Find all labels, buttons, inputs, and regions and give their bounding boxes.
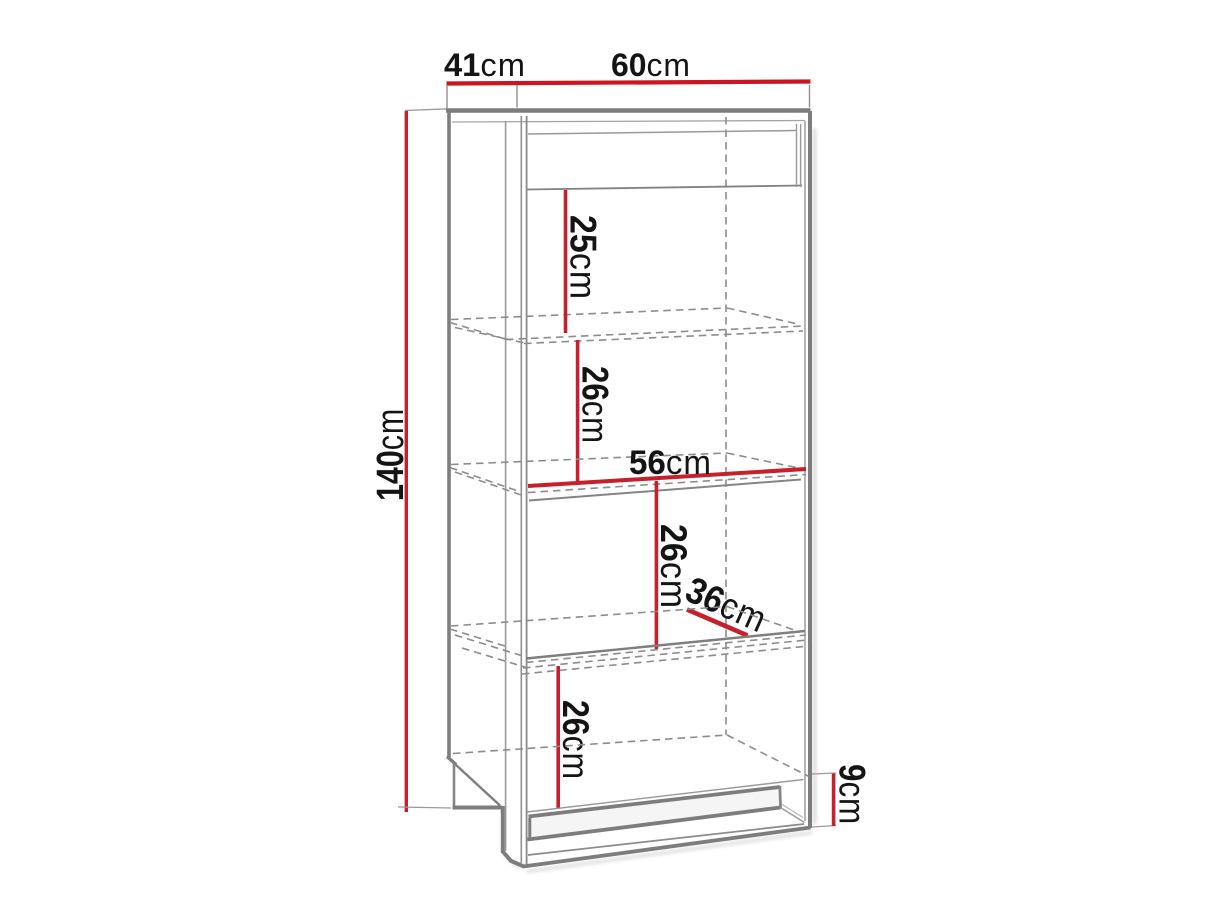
svg-text:25cm: 25cm [563, 215, 604, 300]
svg-text:41cm: 41cm [444, 47, 526, 83]
svg-text:9cm: 9cm [832, 764, 873, 825]
svg-text:26cm: 26cm [555, 700, 596, 780]
svg-text:60cm: 60cm [611, 47, 691, 83]
svg-text:26cm: 26cm [575, 366, 616, 444]
svg-text:56cm: 56cm [629, 444, 712, 482]
svg-text:140cm: 140cm [370, 408, 412, 501]
